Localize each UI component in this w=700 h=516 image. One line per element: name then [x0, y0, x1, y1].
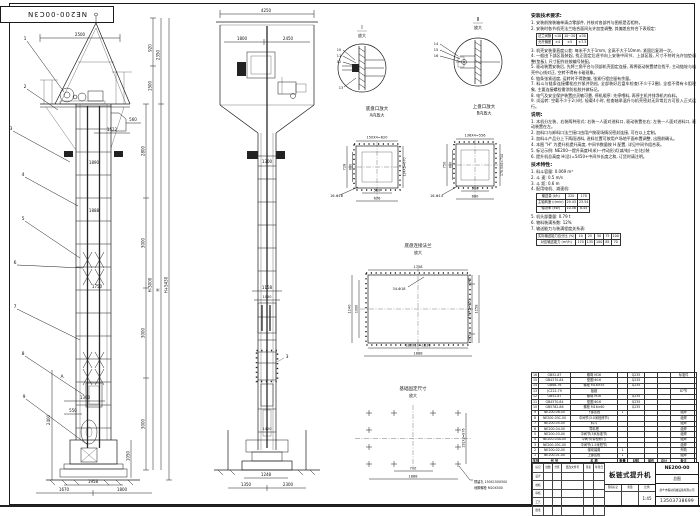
- foundation-bolt-layout: 基础固定尺寸 放大 700 1888 292X3=876 预留孔 150X150…: [355, 385, 507, 490]
- detail-circle-2: 14 15 16 II 放大 上盘口放大 B向放大: [434, 17, 502, 116]
- weight-label: 重量: [622, 485, 638, 492]
- note-item: 5. 标记示例: NE200—提升高度H(米)—传动形式(减/电)—左(右)装: [531, 148, 696, 153]
- note-item: 2. 斗 速: 0.5 m/s: [531, 175, 696, 180]
- dim-label: 1158: [262, 285, 273, 290]
- dim-label: 700: [410, 467, 417, 471]
- dim-label: 134X5=670: [403, 157, 407, 176]
- section-caption: A向放大: [370, 112, 385, 118]
- section-mark: A: [60, 374, 64, 380]
- flange-section-a: 150X4=620 728 600 134X5=670 500 676 16-Φ…: [330, 136, 407, 202]
- dim-label: 1050: [263, 295, 272, 299]
- table-row: 工艺: [533, 498, 605, 507]
- part-leader: 15: [434, 48, 438, 52]
- dim-label: 145: [468, 278, 472, 284]
- note-item: 3. 斗 距: 0.6 m: [531, 181, 696, 186]
- side-elevation-view: 4250 1800 2450 1300 1158 1050 1420 1248 …: [214, 8, 320, 491]
- dim-label: 600: [349, 164, 353, 170]
- foundation-note: 预留孔 150X150X500: [474, 479, 507, 484]
- detail-subtitle: 放大: [474, 24, 482, 30]
- notes-column: 安装技术要求: 1. 安装前按装箱单清点零部件, 并核对各部件与图纸是否相符。2…: [531, 10, 696, 248]
- part-leader: 11: [337, 54, 341, 58]
- detail-subtitle: 放大: [358, 32, 366, 38]
- title-block: 标记处数分区更改文件号签名年月日设计校核审核工艺批准 板链式提升机 阶段标记 重…: [531, 462, 699, 506]
- dim-label: 4250: [261, 8, 272, 13]
- note-item: 3. 机壳安装垂直度公差: 每米不大于1mm, 全高不大于10mm, 紧固后复测…: [531, 48, 696, 53]
- front-elevation-view: 2500 2350 920 1500 2800 3000 3000 3000 H…: [10, 13, 172, 496]
- title-block-right: NE200-00 总图 新乡市振动机械设备有限公司 13503738699: [656, 463, 698, 505]
- stage-label: 阶段标记: [605, 485, 621, 492]
- part-leader: 1: [24, 36, 27, 42]
- detail-title: I: [361, 25, 362, 31]
- dim-label: 178.5X4=714: [500, 154, 504, 176]
- remarks: 说明: 1. 本机分左装、右装两种形式: 右装—人面对进料口, 驱动装置在右; …: [531, 111, 696, 159]
- detail-circle-1: 10 11 12 13 I 放大 底盘口放大 A向放大: [337, 25, 389, 118]
- dim-label: 1888: [89, 208, 100, 213]
- dim-label: 1958: [88, 479, 99, 484]
- stage-value: [605, 492, 621, 505]
- table-row: 设计: [533, 472, 605, 481]
- section-caption: 上盘口放大: [473, 103, 496, 110]
- note-item: 5. 机头部重量: 0.79 t: [531, 214, 696, 219]
- dim-label: 2450: [283, 36, 294, 41]
- dim-label: 1750: [92, 284, 103, 289]
- part-leader: 8: [22, 351, 25, 357]
- part-leader: 7: [14, 304, 17, 310]
- bom-table: 16GB52-87螺母 M16Q235标准件15GB4370-84垫圈 Φ16Q…: [531, 372, 697, 465]
- company-phone: 13503738699: [656, 497, 698, 505]
- dim-label: 2400: [46, 414, 51, 425]
- part-leader: 5: [22, 216, 25, 222]
- dim-label: 500: [472, 187, 479, 191]
- drawing-title: 板链式提升机: [605, 463, 655, 485]
- table-row: 对应输送能力 (m³/h)1701351008570: [537, 239, 621, 245]
- dim-label: 1300: [262, 159, 273, 164]
- scale-value: 1:45: [639, 492, 655, 505]
- dim-label: 1888: [414, 352, 423, 356]
- foundation-note: 地脚螺栓 M20X500: [474, 485, 503, 490]
- table-row: 校核: [533, 481, 605, 490]
- note-item: 6. 物料装满系数: 12%: [531, 220, 696, 225]
- note-item: 4. 一般由下部区段装起, 找正固定后逐节向上安装中间节、上部区段, 尺寸不符时…: [531, 53, 696, 64]
- note-item: 6. 提升机总高度 H(总)=5450+中间节长度之和, 订货时请注明。: [531, 154, 696, 159]
- title-block-middle: 板链式提升机 阶段标记 重量 比例1:45: [605, 463, 656, 505]
- table-row: 审核: [533, 489, 605, 498]
- part-leader: 9: [23, 394, 26, 400]
- note-item: 4. 本图 "H" 为提升机提升高度, 中间节数量按 H 配置, 详见中间节组合…: [531, 142, 696, 147]
- dim-label: 2800: [141, 145, 146, 156]
- part-leader: 10: [337, 48, 341, 52]
- note-item: 4. 配用电机、减速机:: [531, 186, 696, 191]
- detail-subtitle: 放大: [414, 249, 422, 255]
- part-leader: 3: [286, 354, 289, 360]
- part-leader: 3: [10, 126, 13, 132]
- dim-label: 1050: [126, 450, 131, 461]
- note-item: 1. 安装前按装箱单清点零部件, 并核对各部件与图纸是否相符。: [531, 20, 696, 25]
- drawing-number: NE200-00: [656, 463, 698, 475]
- dim-label: 1890: [89, 160, 100, 165]
- part-leader: 12: [337, 60, 341, 64]
- dim-label: 1420: [263, 427, 272, 431]
- dim-label: 600: [449, 162, 453, 168]
- dim-label: 728: [343, 164, 347, 171]
- table-row: 批准: [533, 506, 605, 515]
- dim-label: 2500: [75, 32, 86, 37]
- dim-label: 1300: [80, 395, 91, 400]
- dim-label: 2300: [283, 482, 294, 487]
- part-leader: 13: [339, 86, 343, 90]
- drawing-type: 总图: [656, 475, 698, 484]
- remarks-heading: 说明:: [531, 111, 696, 118]
- tech-specs: 技术特性: 1. 料斗容量: 0.069 m³2. 斗 速: 0.5 m/s3.…: [531, 161, 696, 246]
- dim-label: 1758: [414, 265, 423, 269]
- detail-title: 基础固定尺寸: [400, 385, 427, 392]
- part-leader: 16: [434, 54, 438, 58]
- note-item: 2. 加料口与卸料口法兰接口由用户按现场情况密封连接, 可在以上定制。: [531, 130, 696, 135]
- dim-label: 170X5=850: [468, 299, 472, 318]
- title-block-strip: 阶段标记 重量 比例1:45: [605, 485, 655, 505]
- dim-label: 3000: [141, 418, 146, 429]
- holes-callout: 16-Φ18: [330, 194, 343, 198]
- dim-label: H: [156, 288, 161, 291]
- dim-label: 2350: [156, 49, 161, 60]
- part-leader: 6: [14, 260, 17, 266]
- motor-table: 输送量 (t/h)220170主轴转速 (r/min)29.4323.54轴功率…: [536, 193, 590, 213]
- weight-value: [622, 492, 638, 505]
- note-item: 9. 试运转: 空载不少于2小时, 轻载4小时, 检查轴承温升与机壳密封无异常后…: [531, 98, 696, 109]
- dim-label: 920: [148, 44, 153, 52]
- tech-specs-heading: 技术特性:: [531, 161, 696, 168]
- dim-label: 1800: [237, 36, 248, 41]
- table-row: 标记处数分区更改文件号签名年月日: [533, 464, 605, 473]
- dim-label: 1670: [59, 487, 70, 492]
- dim-label: 500: [374, 189, 381, 193]
- note-item: 7. 料斗与链条连接螺栓应拧紧并防松, 全部装好后盘车检查(不少于2圈), 全程…: [531, 81, 696, 92]
- flange-section-b: 136X4=556 750 600 178.5X4=714 500 600 16…: [430, 134, 504, 200]
- dim-label: 145: [468, 335, 472, 341]
- install-notes: 安装技术要求: 1. 安装前按装箱单清点零部件, 并核对各部件与图纸是否相符。2…: [531, 12, 696, 109]
- dim-label: 1500: [148, 80, 153, 91]
- bucket-chain-zone-upper: [83, 252, 104, 285]
- dim-label: 560: [129, 117, 137, 122]
- part-leader: 2: [24, 84, 27, 90]
- dim-label: 600: [472, 195, 479, 199]
- dim-label: 1248: [261, 472, 272, 477]
- note-item: 5. 驱动装置安装后, 先将三角平台与顶部机壳固定连接, 再将驱动装置就位找平,…: [531, 64, 696, 75]
- install-notes-heading: 安装技术要求:: [531, 12, 696, 19]
- dim-label: 1140: [348, 305, 352, 314]
- table-row: 轴功率 (kW)10.568.45: [537, 206, 590, 212]
- part-leader: 14: [434, 42, 439, 46]
- dim-label: H+5430: [164, 276, 169, 293]
- section-caption: 底盘口放大: [366, 105, 389, 112]
- dim-label: 550: [69, 408, 77, 413]
- capacity-table: 实际输送能力百分比 (%)10255075100对应输送能力 (m³/h)170…: [536, 233, 621, 246]
- base-flange-detail: 底盘连接法兰 放大 1758 34-Φ18 1140 1000 145 170X…: [348, 242, 480, 356]
- detail-subtitle: 放大: [409, 392, 417, 398]
- holes-callout: 16-Φ14: [430, 194, 444, 198]
- title-block-signature-grid: 标记处数分区更改文件号签名年月日设计校核审核工艺批准: [532, 463, 605, 505]
- dim-label: 1522: [107, 127, 118, 132]
- tolerance-table: 法兰间隙<1010~20≥30允许偏差±4±5±7.5: [536, 33, 588, 46]
- bucket-chain-zone-lower: [83, 352, 104, 385]
- dim-label: 1800: [117, 487, 128, 492]
- part-leader: 4: [22, 172, 25, 178]
- dim-label: 1350: [241, 482, 252, 487]
- section-caption: B向放大: [477, 110, 492, 116]
- table-row: 允许偏差±4±5±7.5: [537, 39, 588, 45]
- note-item: 1. 料斗容量: 0.069 m³: [531, 169, 696, 174]
- scale-label: 比例: [639, 485, 655, 492]
- dim-label: 676: [374, 197, 381, 201]
- dim-label: 3000: [141, 327, 146, 338]
- dim-label: H-3000: [148, 277, 153, 292]
- company-name: 新乡市振动机械设备有限公司: [656, 484, 698, 497]
- dim-label: 1888: [409, 475, 418, 479]
- note-item: 7. 输送能力与装满程度关系表:: [531, 226, 696, 231]
- dim-label: 1000: [355, 305, 359, 313]
- holes-callout: 34-Φ18: [393, 287, 406, 291]
- dim-label: 1158: [475, 305, 479, 314]
- dim-label: 150X4=620: [367, 136, 388, 140]
- dim-label: 183X10=1830: [405, 344, 430, 348]
- detail-title: II: [477, 17, 480, 23]
- note-item: 3. 加料斗产品分上下两段进料, 进料位置可按用户场地平面布置调整, 出图前确认…: [531, 136, 696, 141]
- dim-label: 750: [443, 162, 447, 169]
- note-item: 1. 本机分左装、右装两种形式: 右装—人面对进料口, 驱动装置在右; 左装—人…: [531, 119, 696, 130]
- dim-label: 292X3=876: [462, 428, 466, 447]
- note-item: 2. 安装时各节机壳法兰结合面间允许加垫调整, 其偏差应符合下表规定:: [531, 26, 696, 31]
- dim-label: 3000: [141, 237, 146, 248]
- detail-title: 底盘连接法兰: [405, 242, 432, 249]
- dim-label: 136X4=556: [465, 134, 486, 138]
